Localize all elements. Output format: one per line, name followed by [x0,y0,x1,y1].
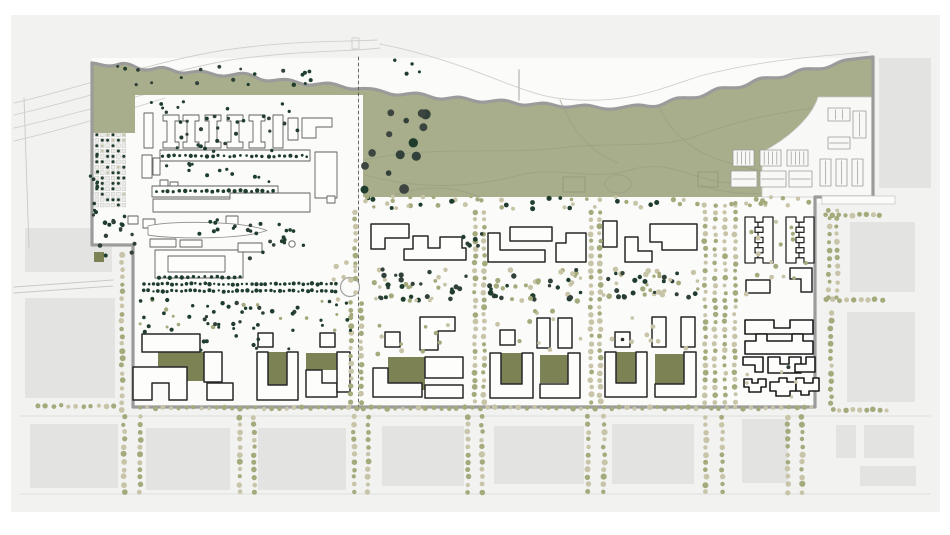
street-tree [800,452,806,458]
street-tree [588,268,594,274]
street-tree [473,356,477,360]
street-tree [161,190,164,193]
tree [368,149,376,157]
street-tree [732,377,737,382]
street-tree [250,190,253,193]
street-tree [359,323,365,329]
street-tree [255,154,258,157]
tree [220,301,224,305]
tree [185,133,188,136]
tree [536,281,540,285]
tree [399,184,409,194]
street-tree [602,405,606,409]
street-tree [704,290,708,294]
street-tree [823,213,828,218]
street-tree [137,445,142,450]
street-tree [473,217,477,221]
tree [696,287,699,290]
street-tree [799,467,803,471]
context-blocks-rect [860,466,916,486]
street-tree [703,210,708,215]
tree [451,200,455,204]
street-tree [702,297,706,301]
street-tree [138,437,144,443]
site-plan-map [0,0,950,535]
street-tree [481,290,486,295]
tree [291,329,294,332]
tree [116,65,119,68]
street-tree [850,407,855,412]
street-tree [204,282,208,286]
street-tree [712,261,717,266]
street-tree [722,347,728,353]
tree [790,226,794,230]
street-tree [288,154,292,158]
street-tree [353,269,357,273]
street-tree [307,283,310,286]
tree [252,343,256,347]
orchard-cell [100,165,104,169]
street-tree [827,240,831,244]
tree [191,163,194,166]
street-tree [704,254,708,258]
street-tree [120,372,124,376]
block-buildings-rect [510,227,552,241]
street-tree [703,313,707,317]
street-tree [172,154,176,158]
pocket-building [733,150,754,166]
tree [285,229,289,233]
street-tree [241,289,244,292]
street-tree [589,225,594,230]
tree [336,297,340,301]
tree [120,222,124,226]
street-tree [227,276,231,280]
street-tree [155,190,158,193]
tree [421,349,426,354]
orchard-cell [95,138,99,142]
street-tree [288,282,291,285]
street-tree [482,217,486,221]
street-tree [598,398,604,404]
street-tree [122,489,128,495]
orchard-cell [106,187,110,191]
street-tree [733,320,737,324]
street-tree [227,290,230,293]
street-tree [245,288,249,292]
tree [142,316,146,320]
street-tree [138,422,143,427]
street-tree [82,404,87,409]
tree [629,339,634,344]
tree [223,142,227,146]
tree [632,278,637,283]
street-tree [588,356,592,360]
street-tree [251,290,254,293]
orchard-cell [122,187,126,191]
street-tree [829,395,834,400]
street-tree [189,281,193,285]
tree [335,303,338,306]
tree [566,278,570,282]
tree [769,275,774,280]
street-tree [733,210,738,215]
street-tree [121,459,127,465]
street-tree [184,154,187,157]
street-tree [714,268,718,272]
street-tree [722,400,727,405]
street-tree [835,263,840,268]
street-tree [828,371,834,377]
tree [231,322,235,326]
tree [374,297,378,301]
street-tree [597,217,602,222]
street-tree [366,423,370,427]
tree [186,120,189,123]
tree [513,284,517,288]
tree [216,126,219,129]
orchard-tree [101,160,104,163]
street-tree [88,404,92,408]
street-tree [585,405,589,409]
street-tree [720,490,725,495]
street-tree [723,247,727,251]
street-tree [216,154,219,157]
street-tree [732,312,736,316]
street-tree [723,305,728,310]
tree [408,195,412,199]
street-tree [138,482,143,487]
street-tree [598,210,602,214]
tree [130,233,133,236]
street-tree [176,406,180,410]
street-tree [120,304,125,309]
street-tree [401,407,405,411]
street-tree [316,405,320,409]
street-tree [161,155,164,158]
street-tree [871,212,876,217]
street-tree [703,430,708,435]
tree [400,284,405,289]
orchard-tree [101,150,104,153]
street-tree [351,430,355,434]
block-buildings-rect [558,318,572,348]
street-tree [597,348,602,353]
tree [614,272,617,275]
street-tree [462,404,467,409]
street-tree [703,452,709,458]
street-tree [597,269,602,274]
street-tree [241,283,243,285]
street-tree [703,349,708,354]
street-tree [722,225,728,231]
tree [657,272,661,276]
tree [92,177,96,181]
street-tree [308,406,312,410]
street-tree [585,414,590,419]
street-tree [598,311,602,315]
tree [436,286,440,290]
orchard-cell [122,198,126,202]
street-tree [233,154,237,158]
street-tree [827,264,831,268]
tree [385,201,390,206]
street-tree [473,254,478,259]
street-tree [252,490,257,495]
tree [206,322,209,325]
street-tree [352,444,358,450]
street-tree [586,430,591,435]
street-tree [602,452,607,457]
street-tree [740,406,745,411]
orchard-cell [117,144,121,148]
tree [467,243,472,248]
street-tree [720,437,725,442]
tree [195,81,199,85]
street-tree [800,437,804,441]
tree [235,301,239,305]
street-tree [59,403,63,407]
street-tree [703,377,708,382]
street-tree [366,482,370,486]
orchard-tree [101,187,104,190]
street-tree [299,405,304,410]
block-buildings-rect [258,333,273,347]
street-tree [834,216,839,221]
tree [575,298,580,303]
street-tree [348,308,353,313]
tree [547,196,552,201]
street-tree [492,404,498,410]
tree [691,270,696,275]
tree [227,117,230,120]
street-tree [799,481,805,487]
street-tree [52,404,57,409]
street-tree [703,246,708,251]
street-tree [264,289,267,292]
street-tree [259,289,263,293]
block-buildings-rect [425,357,463,378]
tree [321,300,324,303]
street-tree [243,189,248,194]
street-tree [238,445,243,450]
tree [434,331,438,335]
street-tree [153,406,158,411]
tree [585,197,589,201]
street-tree [168,276,172,280]
street-tree [712,356,717,361]
street-tree [334,282,338,286]
context-blocks-rect [25,298,115,398]
street-tree [194,154,197,157]
street-tree [732,370,737,375]
tree [675,272,679,276]
street-tree [252,475,257,480]
tree [166,326,169,329]
street-tree [359,400,364,405]
orchard-tree [106,134,109,137]
street-tree [472,378,477,383]
street-tree [481,282,486,287]
street-tree [598,327,603,332]
tree [517,339,521,343]
tree [328,300,332,304]
street-tree [352,474,356,478]
street-tree [122,414,127,419]
street-tree [703,356,708,361]
street-tree [250,155,253,158]
street-tree [795,405,800,410]
street-tree [466,437,471,442]
street-tree [756,407,761,412]
orchard-cell [106,203,110,207]
street-tree [732,348,737,353]
tree [123,215,127,219]
tree [384,295,388,299]
street-tree [589,400,593,404]
street-tree [120,341,124,345]
street-tree [843,408,848,413]
street-tree [703,370,709,376]
tree [176,146,179,149]
street-tree [366,452,370,456]
street-tree [472,260,477,265]
tree [499,198,504,203]
tree [135,83,138,86]
street-tree [724,291,728,295]
tree [432,195,436,199]
street-tree [142,282,146,286]
tree [238,320,241,323]
street-tree [269,406,274,411]
orchard-tree [95,160,98,163]
street-tree [423,406,428,411]
street-tree [601,414,606,419]
tree [569,283,573,287]
street-tree [826,295,831,300]
street-tree [509,406,513,410]
tree [199,127,203,131]
street-tree [598,276,603,281]
street-tree [358,308,364,314]
street-tree [122,436,127,441]
orchard-tree [106,150,109,153]
street-tree [828,280,832,284]
tree [676,281,681,286]
street-tree [831,407,836,412]
tree [645,268,651,274]
tree [349,329,352,332]
tree [353,264,357,268]
street-tree [366,430,371,435]
street-tree [834,225,838,229]
street-tree [351,437,356,442]
street-tree [602,437,606,441]
street-tree [352,459,358,465]
tree [450,287,454,291]
street-tree [598,254,603,259]
tree [133,242,137,246]
tree [480,232,484,236]
courtyard-gardens-rect [540,355,568,383]
street-tree [704,335,708,339]
street-tree [597,318,603,324]
tree [259,222,263,226]
tree [230,172,234,176]
street-tree [283,282,287,286]
tree [410,62,413,65]
street-tree [166,189,170,193]
street-tree [353,224,359,230]
orchard-cell [122,171,126,175]
tree [164,307,168,311]
street-tree [245,283,248,286]
street-tree [733,254,738,259]
orchard-cell [95,176,99,180]
street-tree [589,290,594,295]
courtyard-gardens-rect [268,352,287,385]
street-tree [359,340,363,344]
tree [332,277,336,281]
street-tree [588,253,594,259]
tree [104,234,108,238]
street-tree [733,405,737,409]
street-tree [216,275,219,278]
tree [401,297,406,302]
tree [487,283,492,288]
tree [150,297,154,301]
tree [381,273,386,278]
street-tree [352,468,357,473]
street-tree [597,305,601,309]
tree [240,310,244,314]
tree [606,293,612,299]
tree [407,285,411,289]
street-tree [733,224,738,229]
tree [197,232,201,236]
tree [558,196,562,200]
street-tree [713,253,717,257]
street-tree [186,276,190,280]
tree [304,82,307,85]
street-tree [263,282,267,286]
street-tree [172,190,175,193]
street-tree [835,296,839,300]
block-buildings-rect [500,330,515,345]
street-tree [830,364,834,368]
street-tree [799,414,805,420]
tree [267,117,271,121]
tree [504,203,509,208]
street-tree [723,284,727,288]
street-tree [349,376,353,380]
tree [645,333,650,338]
tree [309,78,313,82]
street-tree [301,154,304,157]
street-tree [223,155,226,158]
orchard-cell [122,182,126,186]
street-tree [253,445,257,449]
tree [615,199,620,204]
street-tree [239,188,243,192]
street-tree [239,275,242,278]
street-tree [857,407,862,412]
street-tree [472,334,477,339]
campus-buildings-rect [128,216,138,224]
orchard-cell [106,160,110,164]
street-tree [316,282,320,286]
tree [92,202,96,206]
